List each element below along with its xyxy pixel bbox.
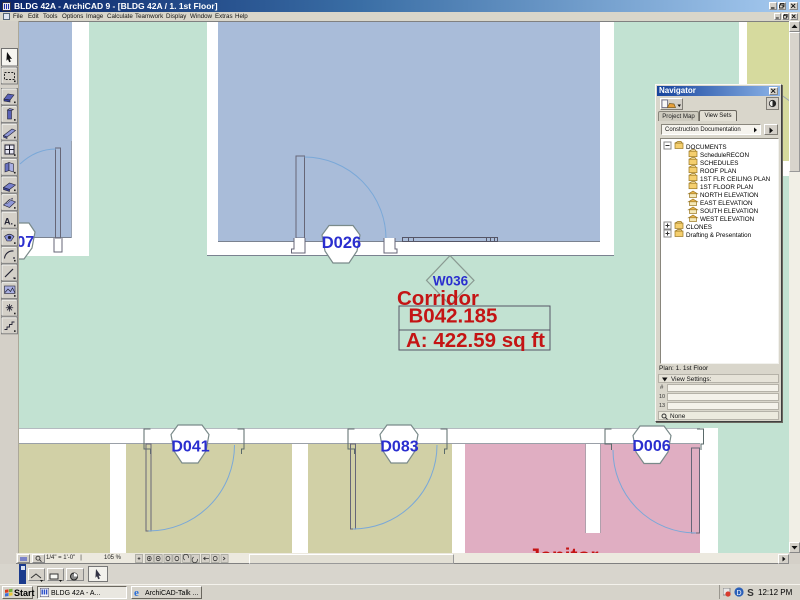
svg-text:1ST FLOOR PLAN: 1ST FLOOR PLAN bbox=[700, 184, 754, 191]
svg-text:1ST FLR CEILING PLAN: 1ST FLR CEILING PLAN bbox=[700, 176, 771, 183]
svg-text:EAST ELEVATION: EAST ELEVATION bbox=[700, 200, 753, 207]
svg-text:Janitor: Janitor bbox=[528, 545, 598, 553]
svg-text:A: 422.59 sq ft: A: 422.59 sq ft bbox=[406, 329, 545, 352]
svg-text:SCHEDULES: SCHEDULES bbox=[700, 160, 739, 167]
svg-text:ScheduleRECON: ScheduleRECON bbox=[700, 152, 749, 159]
svg-text:D026: D026 bbox=[322, 234, 361, 252]
svg-text:CLONES: CLONES bbox=[686, 224, 712, 231]
svg-text:D007: D007 bbox=[19, 234, 34, 251]
svg-text:NORTH ELEVATION: NORTH ELEVATION bbox=[700, 192, 759, 199]
svg-text:Drafting & Presentation: Drafting & Presentation bbox=[686, 232, 752, 239]
svg-text:D041: D041 bbox=[171, 439, 209, 456]
svg-text:ROOF PLAN: ROOF PLAN bbox=[700, 168, 737, 175]
svg-text:D: D bbox=[736, 590, 741, 597]
svg-text:D006: D006 bbox=[632, 438, 670, 455]
svg-text:A.: A. bbox=[4, 217, 13, 227]
svg-text:D083: D083 bbox=[380, 439, 418, 456]
svg-text:B042.185: B042.185 bbox=[409, 305, 498, 328]
svg-text:SOUTH ELEVATION: SOUTH ELEVATION bbox=[700, 208, 759, 215]
svg-text:S: S bbox=[747, 588, 754, 597]
svg-text:WEST ELEVATION: WEST ELEVATION bbox=[700, 216, 755, 223]
